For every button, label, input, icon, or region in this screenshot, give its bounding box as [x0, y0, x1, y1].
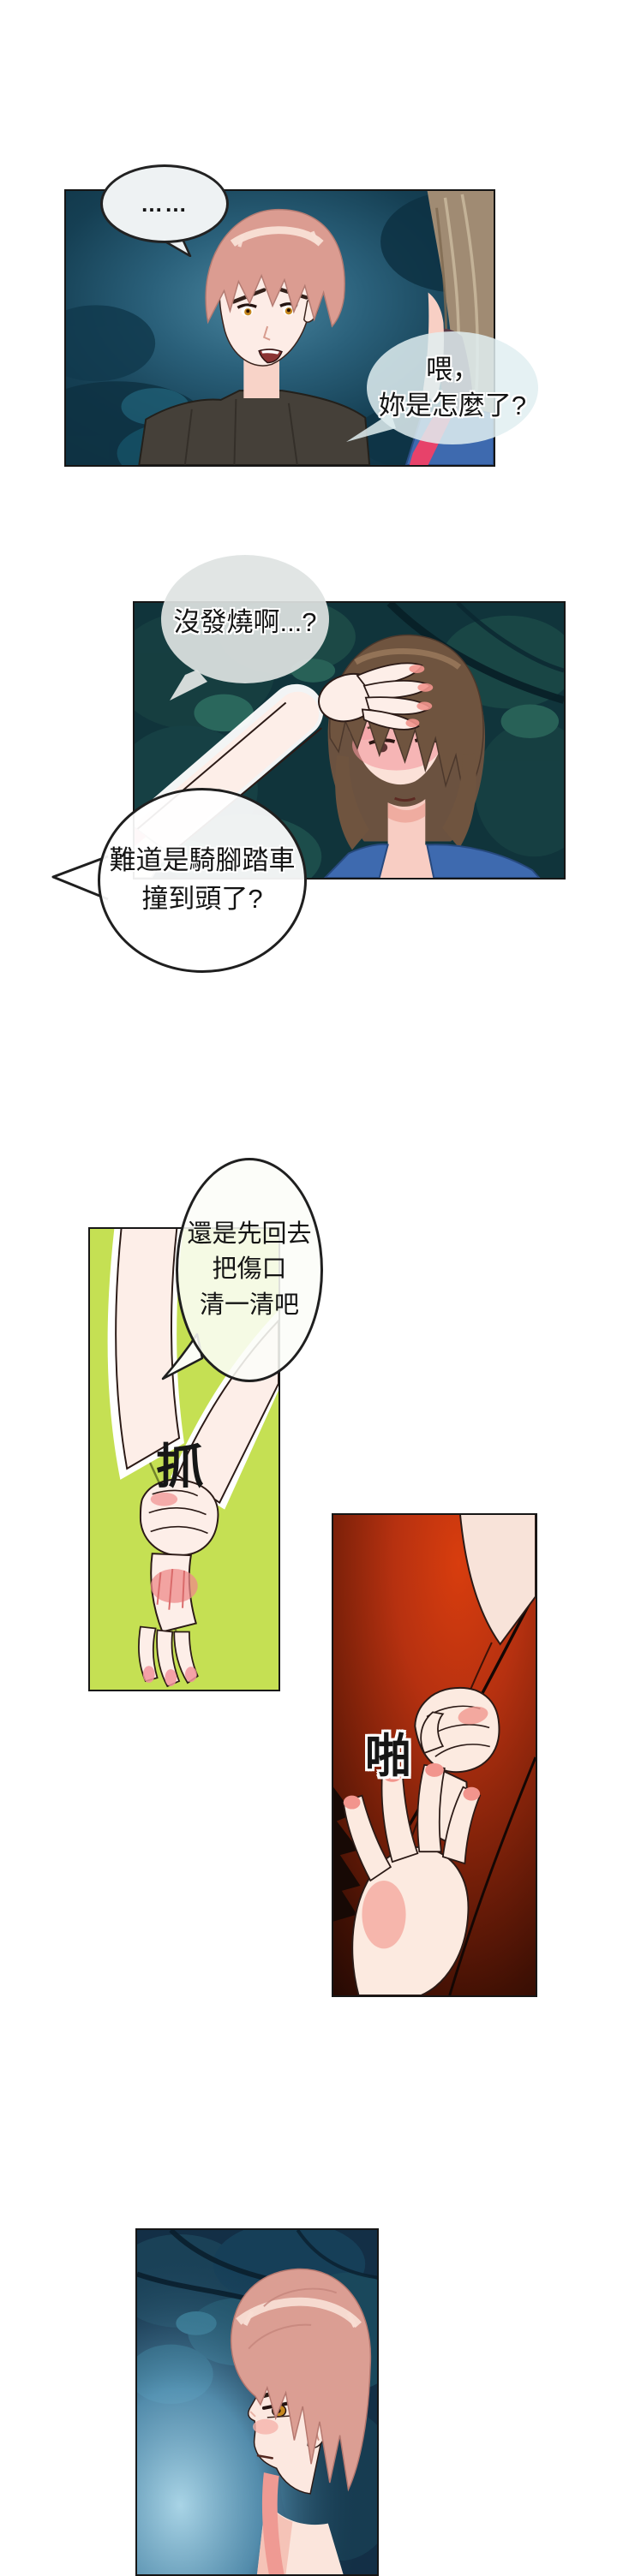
- bubble-text-line: 喂，: [426, 352, 479, 388]
- panel-4-slap-away: [332, 1513, 537, 1997]
- panel-5-boy-profile: [135, 2228, 379, 2576]
- panel-4-art: [333, 1515, 536, 1995]
- panel-5-art: [137, 2230, 377, 2574]
- speech-bubble-bike-crash: 難道是騎腳踏車 撞到頭了?: [98, 788, 307, 973]
- bubble-text-line: 清一清吧: [200, 1288, 299, 1323]
- sfx-slap: 啪: [365, 1718, 411, 1786]
- speech-bubble-no-fever: 沒發燒啊...?: [161, 555, 329, 683]
- bubble-text-line: 難道是騎腳踏車: [110, 842, 296, 880]
- sfx-grab: 抓: [156, 1428, 204, 1498]
- bubble-text: ……: [141, 191, 189, 218]
- speech-bubble-ellipsis: ……: [100, 164, 229, 243]
- bubble-text-line: 把傷口: [212, 1252, 286, 1287]
- speech-bubble-go-back: 還是先回去 把傷口 清一清吧: [176, 1158, 323, 1382]
- speech-bubble-hey: 喂， 妳是怎麼了?: [367, 331, 538, 444]
- bubble-text-line: 還是先回去: [187, 1217, 311, 1252]
- bubble-text-line: 妳是怎麼了?: [379, 388, 526, 424]
- bubble-text-line: 撞到頭了?: [141, 880, 262, 919]
- bubble-text-line: 沒發燒啊...?: [173, 600, 316, 639]
